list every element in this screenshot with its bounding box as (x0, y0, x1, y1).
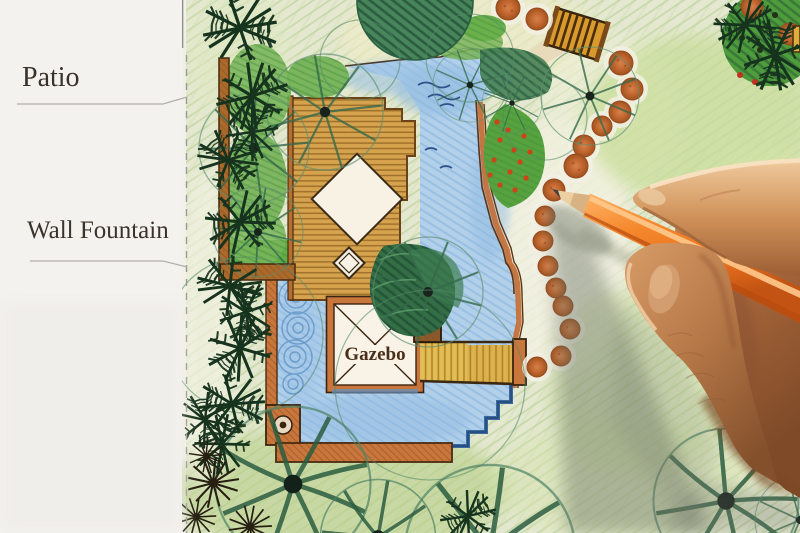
svg-text:Patio: Patio (22, 62, 80, 93)
svg-text:Wall Fountain: Wall Fountain (27, 217, 169, 244)
svg-text:Gazebo: Gazebo (344, 344, 405, 365)
